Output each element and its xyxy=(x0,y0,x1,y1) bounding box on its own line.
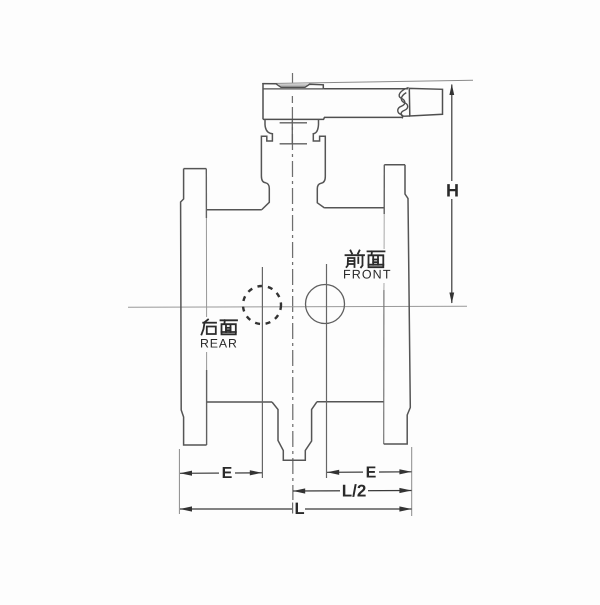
svg-text:E: E xyxy=(366,465,377,482)
svg-text:FRONT: FRONT xyxy=(343,268,392,282)
svg-text:L: L xyxy=(294,500,304,518)
svg-text:L/2: L/2 xyxy=(342,482,367,501)
svg-text:REAR: REAR xyxy=(200,337,238,351)
svg-text:H: H xyxy=(446,181,459,201)
svg-text:E: E xyxy=(222,465,233,482)
